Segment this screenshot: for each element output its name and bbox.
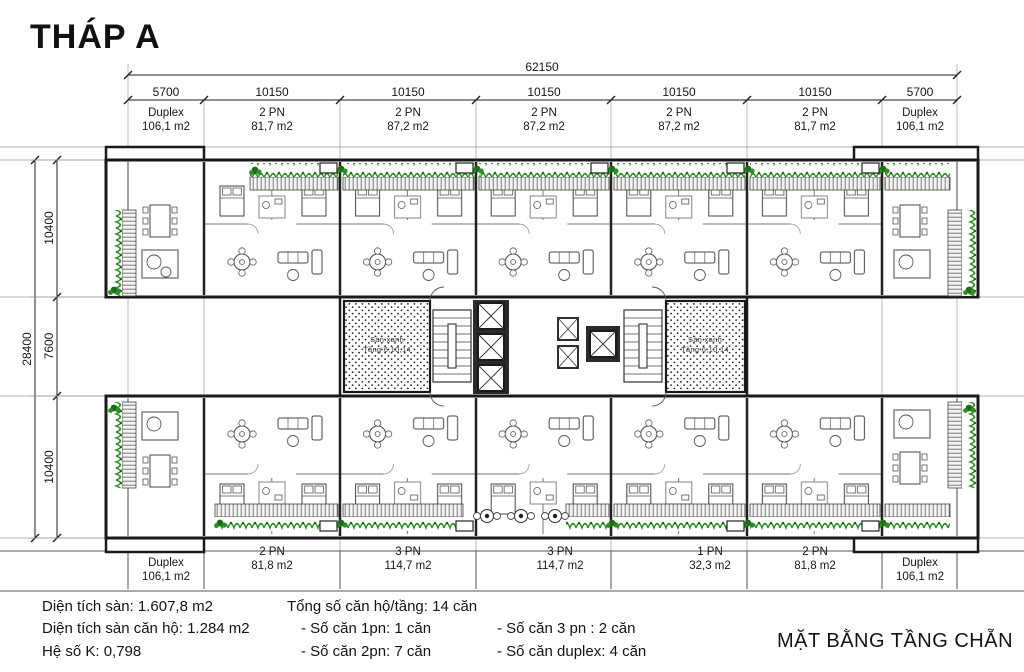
floor-plan-page: { "title": "THÁP A", "plan_caption": "MẶ… (0, 0, 1024, 672)
terrace-tables (474, 510, 569, 523)
stair-icon (433, 310, 471, 382)
top-unit-3-type: 2 PN (395, 107, 421, 119)
top-unit-6-type: 2 PN (802, 107, 828, 119)
stat-3pn-count: - Số căn 3 pn : 2 căn (497, 620, 635, 637)
depth-seg-dim-3: 10400 (42, 450, 56, 483)
shaft-icon (558, 318, 578, 340)
depth-seg-dim-2: 7600 (42, 333, 56, 360)
elevator-icon (590, 331, 616, 357)
width-seg-dim-6: 10150 (798, 85, 831, 99)
stat-total-units: Tổng số căn hộ/tầng: 14 căn (287, 598, 477, 615)
width-seg-dim-4: 10150 (527, 85, 560, 99)
bottom-unit-6-type: 2 PN (802, 546, 828, 558)
overall-depth-dim: 28400 (20, 332, 34, 365)
bottom-unit-3-type: 3 PN (395, 546, 421, 558)
stair-icon (624, 310, 662, 382)
top-unit-1-area: 106,1 m2 (142, 121, 190, 133)
top-unit-7-type: Duplex (902, 107, 938, 119)
green-floor-label-left-1: Sàn xanh (370, 335, 404, 344)
top-unit-5-type: 2 PN (666, 107, 692, 119)
bottom-unit-5-area: 32,3 m2 (689, 560, 731, 572)
bottom-unit-1-area: 106,1 m2 (142, 571, 190, 583)
bottom-unit-2-type: 2 PN (259, 546, 285, 558)
elevator-icon (478, 334, 504, 360)
bottom-unit-5-type: 1 PN (697, 546, 723, 558)
bottom-unit-6-area: 81,8 m2 (794, 560, 836, 572)
plan-caption: MẶT BẰNG TẦNG CHẴN (777, 630, 1013, 653)
bottom-unit-1-type: Duplex (148, 557, 184, 569)
shaft-icon (558, 346, 578, 368)
top-unit-2-area: 81,7 m2 (251, 121, 293, 133)
top-unit-3-area: 87,2 m2 (387, 121, 429, 133)
bottom-unit-4-type: 3 PN (547, 546, 573, 558)
bottom-unit-2-area: 81,8 m2 (251, 560, 293, 572)
bottom-unit-3-area: 114,7 m2 (384, 560, 431, 572)
width-seg-dim-1: 5700 (153, 85, 180, 99)
stat-k-factor: Hệ số K: 0,798 (42, 643, 141, 660)
stat-2pn-count: - Số căn 2pn: 7 căn (301, 643, 431, 660)
width-seg-dim-7: 5700 (907, 85, 934, 99)
overall-width-dim: 62150 (525, 60, 558, 74)
green-floor-label-right-1: Sàn xanh (688, 335, 722, 344)
width-seg-dim-3: 10150 (391, 85, 424, 99)
bottom-unit-4-area: 114,7 m2 (536, 560, 583, 572)
width-seg-dim-2: 10150 (255, 85, 288, 99)
width-seg-dim-5: 10150 (662, 85, 695, 99)
elevator-icon (478, 303, 504, 329)
green-floor-label-left-2: Tầng 6,10,14 (363, 345, 411, 354)
stat-unit-floor-area: Diện tích sàn căn hộ: 1.284 m2 (42, 620, 250, 637)
top-unit-5-area: 87,2 m2 (658, 121, 700, 133)
bottom-unit-7-type: Duplex (902, 557, 938, 569)
top-unit-4-type: 2 PN (531, 107, 557, 119)
green-floor-label-right-2: Tầng 6,10,14 (681, 345, 729, 354)
bottom-unit-7-area: 106,1 m2 (896, 571, 944, 583)
top-unit-6-area: 81,7 m2 (794, 121, 836, 133)
elevator-icon (478, 365, 504, 391)
top-unit-1-type: Duplex (148, 107, 184, 119)
top-unit-7-area: 106,1 m2 (896, 121, 944, 133)
top-unit-4-area: 87,2 m2 (523, 121, 565, 133)
stat-1pn-count: - Số căn 1pn: 1 căn (301, 620, 431, 637)
depth-seg-dim-1: 10400 (42, 211, 56, 244)
plan-title: THÁP A (30, 18, 161, 57)
stat-duplex-count: - Số căn duplex: 4 căn (497, 643, 646, 660)
stat-floor-area: Diện tích sàn: 1.607,8 m2 (42, 598, 213, 615)
top-unit-2-type: 2 PN (259, 107, 285, 119)
